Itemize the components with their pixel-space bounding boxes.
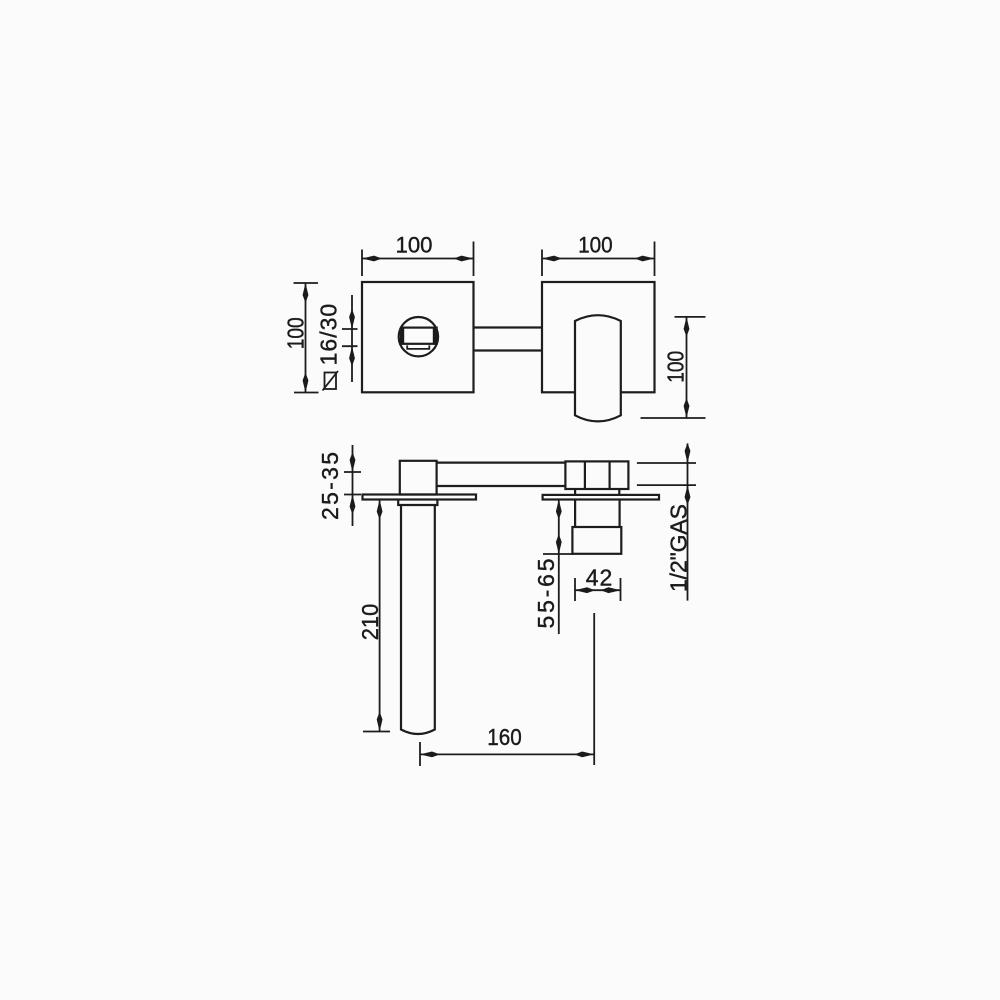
svg-text:42: 42 bbox=[586, 565, 613, 591]
svg-text:160: 160 bbox=[487, 724, 522, 750]
svg-text:25-35: 25-35 bbox=[317, 452, 343, 520]
svg-text:100: 100 bbox=[578, 232, 613, 257]
svg-text:16/30: 16/30 bbox=[316, 304, 342, 366]
svg-text:55-65: 55-65 bbox=[533, 559, 559, 629]
svg-text:100: 100 bbox=[283, 317, 309, 349]
svg-text:1/2"GAS: 1/2"GAS bbox=[666, 504, 692, 592]
svg-text:100: 100 bbox=[396, 232, 433, 257]
svg-text:100: 100 bbox=[663, 351, 689, 383]
svg-text:210: 210 bbox=[357, 604, 383, 641]
